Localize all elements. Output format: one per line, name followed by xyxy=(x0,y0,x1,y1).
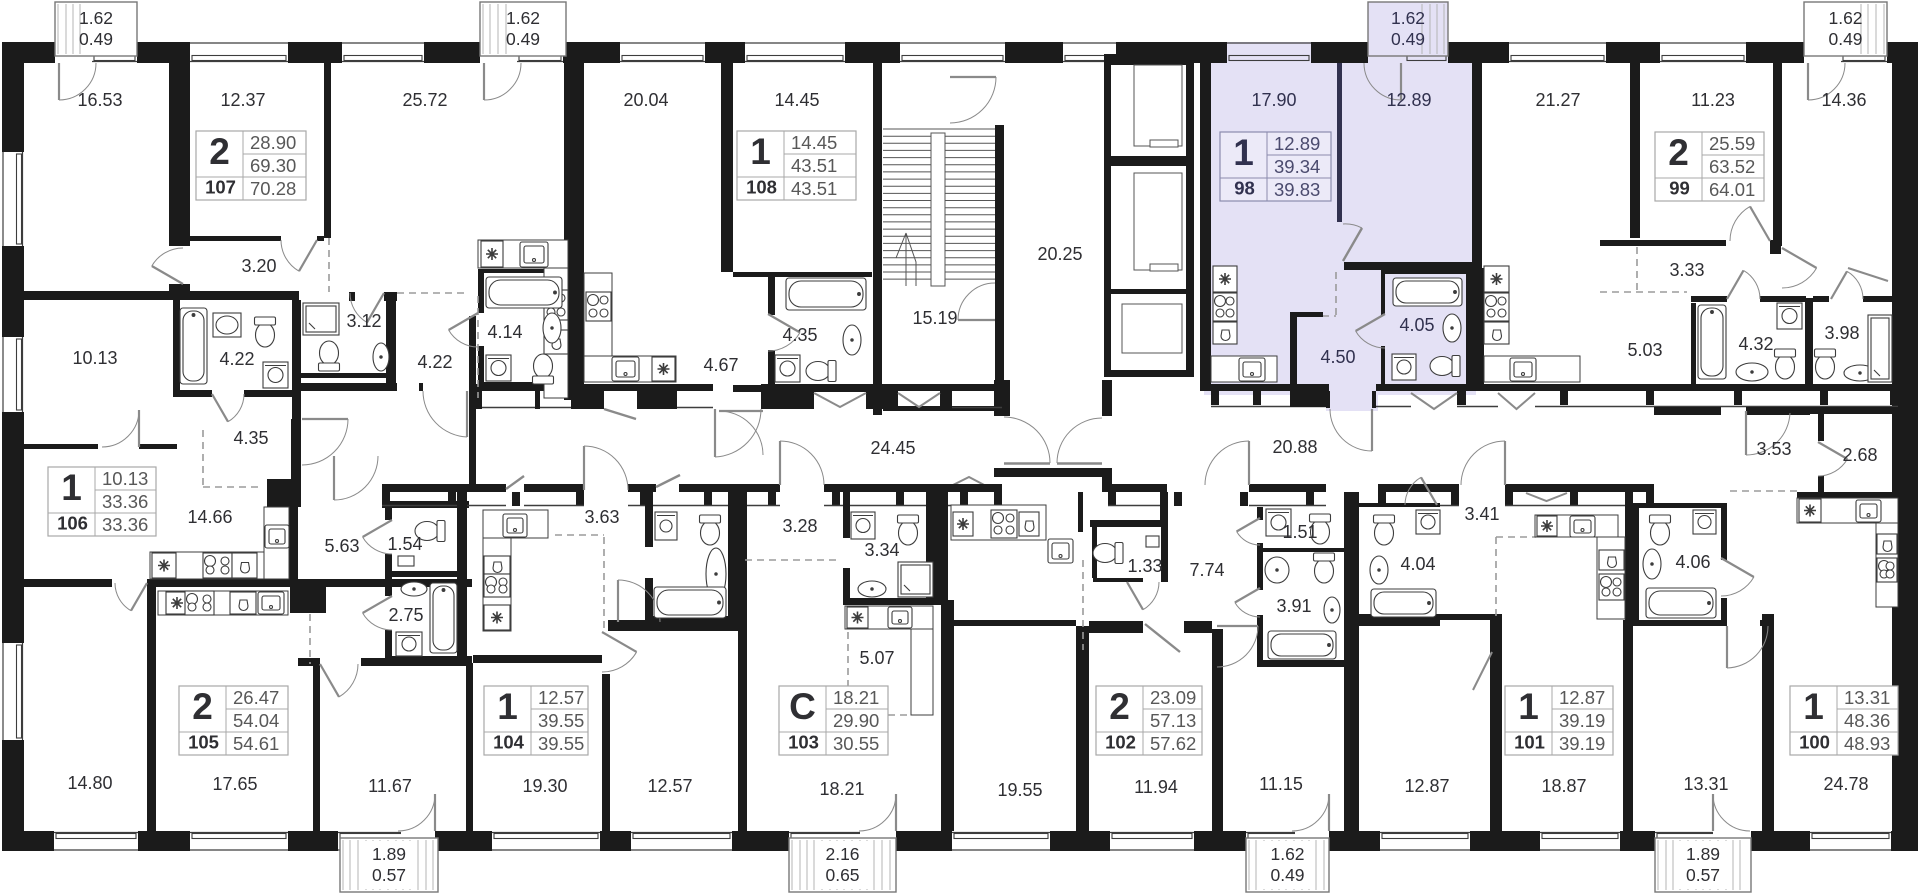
svg-text:30.55: 30.55 xyxy=(833,733,879,754)
svg-text:11.15: 11.15 xyxy=(1259,774,1303,794)
svg-text:107: 107 xyxy=(205,177,236,198)
svg-text:4.32: 4.32 xyxy=(1738,334,1773,354)
svg-text:1: 1 xyxy=(1803,686,1824,727)
svg-text:1: 1 xyxy=(61,467,82,508)
svg-text:12.87: 12.87 xyxy=(1404,776,1449,796)
svg-text:39.19: 39.19 xyxy=(1559,710,1605,731)
svg-text:10.13: 10.13 xyxy=(102,468,148,489)
svg-text:4.22: 4.22 xyxy=(219,349,254,369)
svg-text:1.89: 1.89 xyxy=(372,844,406,864)
svg-text:4.05: 4.05 xyxy=(1399,315,1434,335)
svg-text:21.27: 21.27 xyxy=(1535,90,1580,110)
svg-text:1.62: 1.62 xyxy=(1828,8,1862,28)
svg-text:4.04: 4.04 xyxy=(1400,554,1435,574)
svg-text:3.41: 3.41 xyxy=(1464,504,1499,524)
svg-text:1.62: 1.62 xyxy=(1391,8,1425,28)
svg-text:69.30: 69.30 xyxy=(250,155,296,176)
svg-text:0.49: 0.49 xyxy=(79,29,113,49)
svg-text:1.54: 1.54 xyxy=(387,534,422,554)
svg-text:11.67: 11.67 xyxy=(368,776,412,796)
svg-text:1.62: 1.62 xyxy=(79,8,113,28)
svg-text:104: 104 xyxy=(493,732,525,753)
svg-text:108: 108 xyxy=(746,177,777,198)
svg-text:102: 102 xyxy=(1105,732,1136,753)
svg-text:0.49: 0.49 xyxy=(1270,865,1304,885)
svg-text:14.66: 14.66 xyxy=(187,507,232,527)
svg-text:20.04: 20.04 xyxy=(623,90,668,110)
svg-text:48.36: 48.36 xyxy=(1844,710,1890,731)
svg-text:1.62: 1.62 xyxy=(1270,844,1304,864)
svg-text:33.36: 33.36 xyxy=(102,491,148,512)
svg-text:2: 2 xyxy=(1109,686,1130,727)
svg-text:5.03: 5.03 xyxy=(1627,340,1662,360)
svg-text:19.30: 19.30 xyxy=(522,776,567,796)
svg-text:1: 1 xyxy=(1518,686,1539,727)
svg-text:4.35: 4.35 xyxy=(233,428,268,448)
svg-text:0.57: 0.57 xyxy=(372,865,406,885)
svg-text:12.57: 12.57 xyxy=(538,687,584,708)
svg-text:2.68: 2.68 xyxy=(1842,445,1877,465)
svg-text:1: 1 xyxy=(1233,132,1254,173)
svg-text:1: 1 xyxy=(750,131,771,172)
svg-text:4.06: 4.06 xyxy=(1675,552,1710,572)
svg-text:5.63: 5.63 xyxy=(324,536,359,556)
svg-text:0.65: 0.65 xyxy=(825,865,859,885)
svg-text:29.90: 29.90 xyxy=(833,710,879,731)
svg-text:5.07: 5.07 xyxy=(859,648,894,668)
svg-text:54.04: 54.04 xyxy=(233,710,279,731)
svg-text:15.19: 15.19 xyxy=(912,308,957,328)
svg-text:4.35: 4.35 xyxy=(782,325,817,345)
svg-text:14.45: 14.45 xyxy=(791,132,837,153)
svg-text:24.78: 24.78 xyxy=(1823,774,1868,794)
svg-text:39.83: 39.83 xyxy=(1274,179,1320,200)
svg-text:20.88: 20.88 xyxy=(1272,437,1317,457)
svg-text:25.72: 25.72 xyxy=(402,90,447,110)
svg-text:14.80: 14.80 xyxy=(67,773,112,793)
svg-text:19.55: 19.55 xyxy=(997,780,1042,800)
svg-text:3.91: 3.91 xyxy=(1276,596,1311,616)
svg-text:106: 106 xyxy=(57,513,88,534)
svg-text:18.87: 18.87 xyxy=(1541,776,1586,796)
svg-text:103: 103 xyxy=(788,732,819,753)
svg-text:26.47: 26.47 xyxy=(233,687,279,708)
svg-text:64.01: 64.01 xyxy=(1709,179,1755,200)
svg-text:3.12: 3.12 xyxy=(346,311,381,331)
svg-text:11.94: 11.94 xyxy=(1134,777,1178,797)
svg-text:48.93: 48.93 xyxy=(1844,733,1890,754)
svg-text:3.53: 3.53 xyxy=(1756,439,1791,459)
svg-text:18.21: 18.21 xyxy=(833,687,879,708)
svg-text:1: 1 xyxy=(497,686,518,727)
svg-text:4.50: 4.50 xyxy=(1320,347,1355,367)
svg-text:0.49: 0.49 xyxy=(1391,29,1425,49)
svg-text:12.57: 12.57 xyxy=(647,776,692,796)
svg-text:18.21: 18.21 xyxy=(819,779,864,799)
svg-text:14.45: 14.45 xyxy=(774,90,819,110)
svg-text:3.20: 3.20 xyxy=(241,256,276,276)
svg-text:25.59: 25.59 xyxy=(1709,133,1755,154)
svg-text:39.34: 39.34 xyxy=(1274,156,1320,177)
svg-text:2.16: 2.16 xyxy=(825,844,859,864)
svg-text:43.51: 43.51 xyxy=(791,178,837,199)
svg-text:7.74: 7.74 xyxy=(1189,560,1224,580)
svg-text:3.34: 3.34 xyxy=(864,540,899,560)
svg-text:1.51: 1.51 xyxy=(1282,522,1317,542)
svg-text:70.28: 70.28 xyxy=(250,178,296,199)
svg-text:12.89: 12.89 xyxy=(1386,90,1431,110)
svg-text:12.89: 12.89 xyxy=(1274,133,1320,154)
svg-text:12.87: 12.87 xyxy=(1559,687,1605,708)
svg-text:2: 2 xyxy=(1668,132,1689,173)
svg-text:39.55: 39.55 xyxy=(538,733,584,754)
svg-text:57.62: 57.62 xyxy=(1150,733,1196,754)
svg-text:28.90: 28.90 xyxy=(250,132,296,153)
svg-text:24.45: 24.45 xyxy=(870,438,915,458)
svg-text:C: C xyxy=(789,686,816,727)
svg-text:14.36: 14.36 xyxy=(1821,90,1866,110)
svg-text:2: 2 xyxy=(192,686,213,727)
svg-text:3.33: 3.33 xyxy=(1669,260,1704,280)
svg-text:3.28: 3.28 xyxy=(782,516,817,536)
svg-text:100: 100 xyxy=(1799,732,1830,753)
svg-text:2: 2 xyxy=(209,131,230,172)
svg-text:20.25: 20.25 xyxy=(1037,244,1082,264)
svg-text:11.23: 11.23 xyxy=(1691,90,1735,110)
svg-text:16.53: 16.53 xyxy=(77,90,122,110)
svg-text:12.37: 12.37 xyxy=(220,90,265,110)
svg-text:43.51: 43.51 xyxy=(791,155,837,176)
svg-text:0.57: 0.57 xyxy=(1686,865,1720,885)
svg-text:63.52: 63.52 xyxy=(1709,156,1755,177)
svg-text:101: 101 xyxy=(1514,732,1545,753)
svg-text:105: 105 xyxy=(188,732,219,753)
svg-text:1.33: 1.33 xyxy=(1127,556,1162,576)
svg-text:99: 99 xyxy=(1669,178,1690,199)
svg-text:23.09: 23.09 xyxy=(1150,687,1196,708)
svg-text:17.90: 17.90 xyxy=(1251,90,1296,110)
svg-text:1.89: 1.89 xyxy=(1686,844,1720,864)
svg-text:57.13: 57.13 xyxy=(1150,710,1196,731)
svg-text:13.31: 13.31 xyxy=(1683,774,1728,794)
svg-text:10.13: 10.13 xyxy=(72,348,117,368)
svg-text:54.61: 54.61 xyxy=(233,733,279,754)
svg-text:39.19: 39.19 xyxy=(1559,733,1605,754)
svg-text:33.36: 33.36 xyxy=(102,514,148,535)
svg-text:4.67: 4.67 xyxy=(703,355,738,375)
svg-text:4.14: 4.14 xyxy=(487,322,522,342)
svg-text:1.62: 1.62 xyxy=(506,8,540,28)
svg-text:13.31: 13.31 xyxy=(1844,687,1890,708)
svg-text:17.65: 17.65 xyxy=(212,774,257,794)
svg-text:3.63: 3.63 xyxy=(584,507,619,527)
svg-text:3.98: 3.98 xyxy=(1824,323,1859,343)
svg-text:0.49: 0.49 xyxy=(506,29,540,49)
svg-text:39.55: 39.55 xyxy=(538,710,584,731)
svg-text:4.22: 4.22 xyxy=(417,352,452,372)
svg-text:2.75: 2.75 xyxy=(388,605,423,625)
svg-text:98: 98 xyxy=(1234,178,1255,199)
svg-text:0.49: 0.49 xyxy=(1828,29,1862,49)
